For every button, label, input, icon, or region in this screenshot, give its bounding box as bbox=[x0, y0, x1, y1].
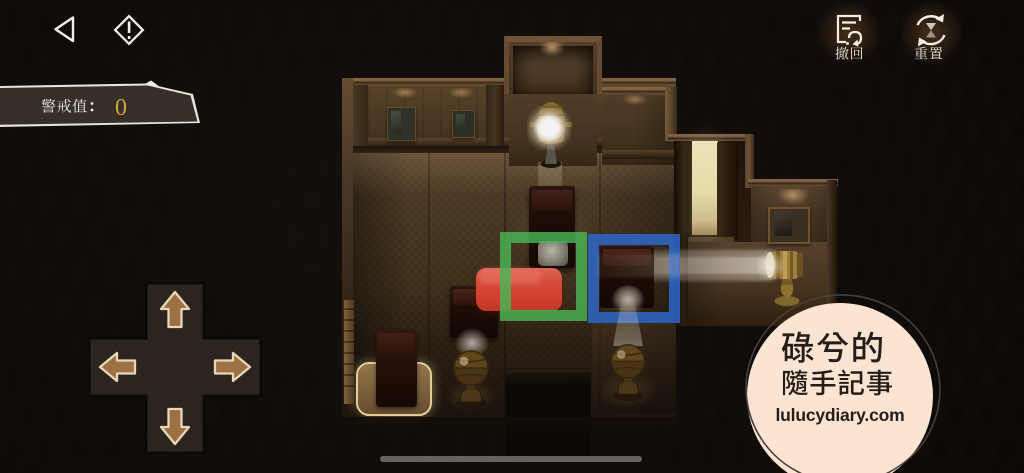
svg-text:0: 0 bbox=[115, 95, 127, 121]
svg-text:lulucydiary.com: lulucydiary.com bbox=[776, 405, 905, 425]
